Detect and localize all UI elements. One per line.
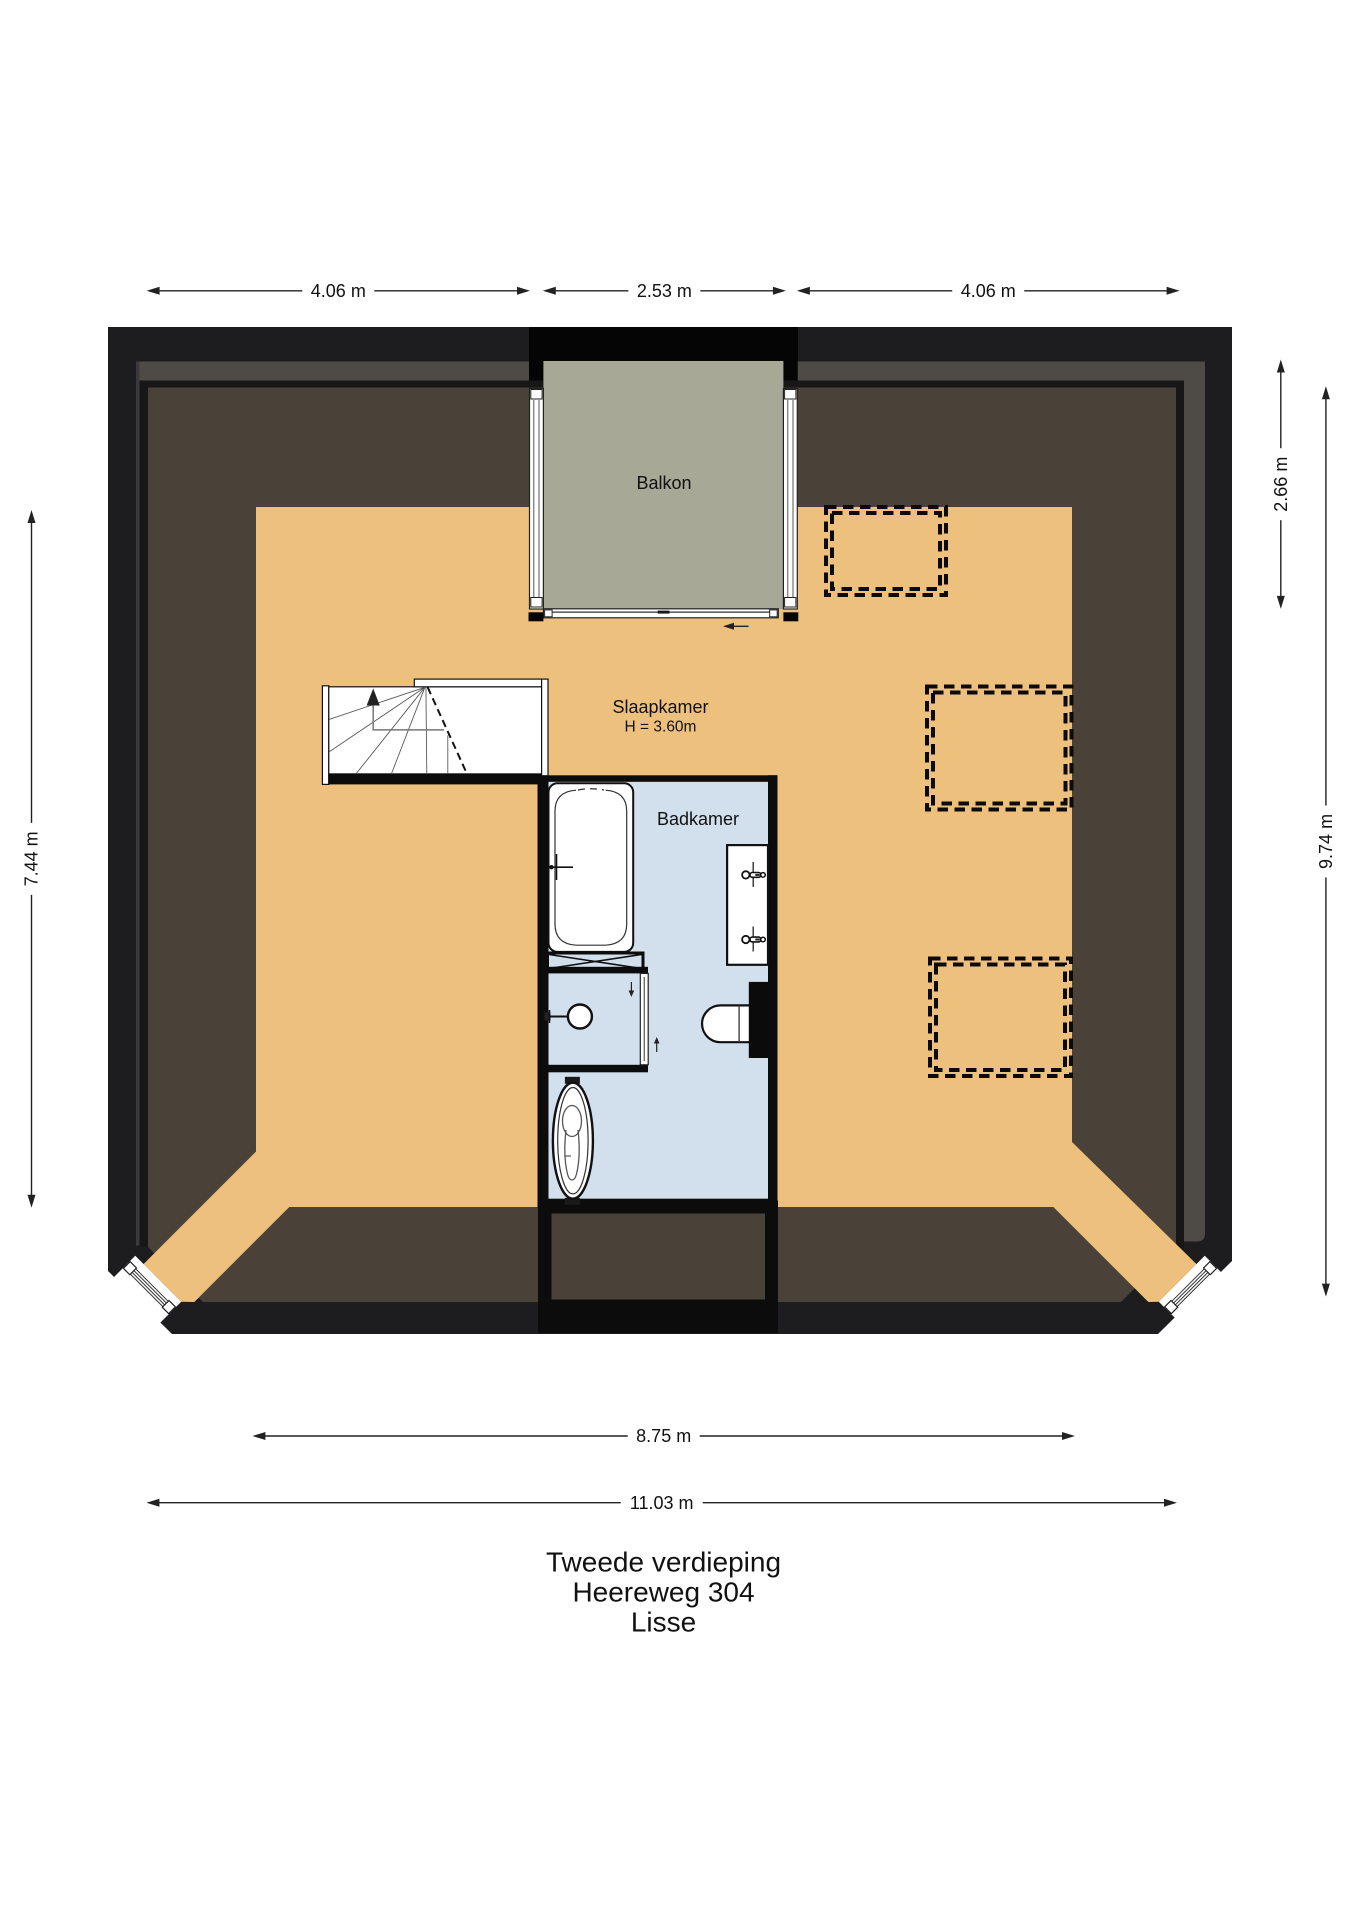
svg-text:Lisse: Lisse: [631, 1607, 696, 1638]
svg-text:Balkon: Balkon: [636, 473, 691, 493]
svg-text:Badkamer: Badkamer: [657, 809, 739, 829]
svg-text:2.53 m: 2.53 m: [637, 281, 692, 301]
svg-text:H = 3.60m: H = 3.60m: [625, 719, 697, 736]
svg-text:2.66 m: 2.66 m: [1271, 457, 1291, 512]
svg-text:9.74 m: 9.74 m: [1316, 814, 1336, 869]
svg-text:Slaapkamer: Slaapkamer: [612, 697, 708, 717]
svg-text:Heereweg 304: Heereweg 304: [572, 1576, 754, 1607]
svg-text:4.06 m: 4.06 m: [311, 281, 366, 301]
svg-text:4.06 m: 4.06 m: [961, 281, 1016, 301]
svg-text:Tweede verdieping: Tweede verdieping: [546, 1547, 781, 1578]
svg-text:8.75 m: 8.75 m: [636, 1426, 691, 1446]
svg-text:7.44 m: 7.44 m: [22, 831, 42, 886]
svg-text:11.03 m: 11.03 m: [630, 1493, 694, 1513]
